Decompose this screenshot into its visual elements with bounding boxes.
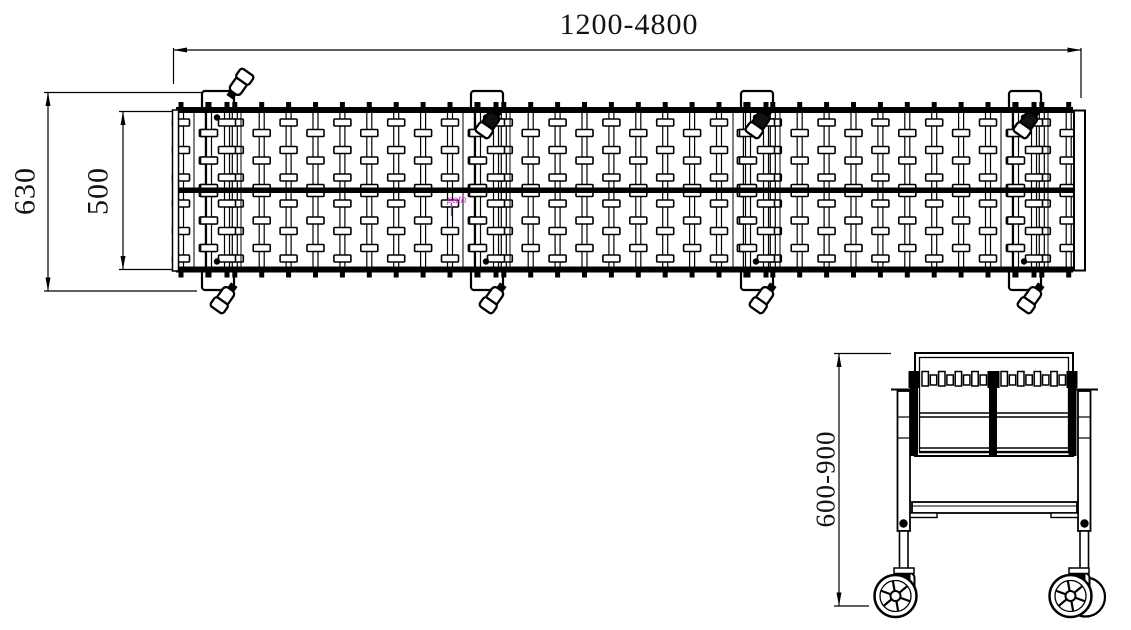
skate-wheel [522, 157, 539, 164]
skate-wheel [442, 119, 459, 126]
middle-rail [176, 188, 1073, 194]
dimension-arrow [174, 48, 188, 53]
skate-wheel [872, 119, 889, 126]
skate-wheel [280, 147, 297, 154]
skate-wheel [415, 245, 432, 252]
axle-stud [878, 273, 883, 278]
skate-wheel [522, 245, 539, 252]
leg-inner-tube [900, 531, 909, 569]
skate-wheel [470, 245, 487, 252]
skate-wheel [630, 130, 647, 137]
skate-wheel [872, 174, 889, 181]
caster-plate [894, 568, 914, 574]
shelf-panel [912, 502, 1077, 513]
skate-wheel [926, 174, 943, 181]
skate-wheel [576, 130, 593, 137]
skate-wheel [549, 119, 566, 126]
axle-stud [746, 102, 751, 107]
axle-stud [528, 273, 533, 278]
skate-wheel [470, 157, 487, 164]
axle-stud [663, 273, 668, 278]
axle-stud [501, 102, 506, 107]
skate-wheel [818, 147, 835, 154]
skate-wheel [791, 157, 808, 164]
axle-stud [851, 273, 856, 278]
skate-wheel [415, 130, 432, 137]
axle-stud [582, 102, 587, 107]
skate-wheel [334, 119, 351, 126]
skate-wheel [334, 147, 351, 154]
skate-wheel [711, 200, 728, 207]
skate-wheel [684, 157, 701, 164]
skate-wheel [926, 147, 943, 154]
skate-wheel [711, 255, 728, 262]
skate-wheel [603, 147, 620, 154]
axle-stud [905, 102, 910, 107]
axle-stud [986, 102, 991, 107]
skate-wheel [758, 147, 775, 154]
axle-stud [494, 273, 499, 278]
skate-wheel [603, 119, 620, 126]
skate-wheel [872, 147, 889, 154]
skate-wheel [280, 200, 297, 207]
axle-stud [421, 273, 426, 278]
axle-stud [313, 273, 318, 278]
skate-wheel [1026, 147, 1043, 154]
skate-wheel [899, 130, 916, 137]
skate-wheel-end [972, 372, 978, 387]
skate-wheel [549, 228, 566, 235]
skate-wheel [791, 130, 808, 137]
skate-wheel [576, 245, 593, 252]
skate-wheel [684, 217, 701, 224]
axle-stud [1039, 273, 1044, 278]
axle-stud [986, 273, 991, 278]
axle-stud [476, 273, 481, 278]
axle-stud [717, 102, 722, 107]
skate-wheel [219, 119, 236, 126]
center-post [989, 372, 997, 456]
axle-stud [259, 273, 264, 278]
skate-wheel [953, 217, 970, 224]
skate-wheel-end [980, 375, 986, 385]
axle-stud [824, 273, 829, 278]
axle-stud [932, 102, 937, 107]
dimension-arrow [837, 593, 842, 607]
skate-wheel [522, 130, 539, 137]
skate-wheel [603, 174, 620, 181]
axle-stud [555, 102, 560, 107]
skate-wheel [630, 217, 647, 224]
axle-stud [770, 273, 775, 278]
skate-wheel [388, 228, 405, 235]
skate-wheel [872, 255, 889, 262]
skate-wheel-end [922, 372, 928, 387]
axle-stud [582, 273, 587, 278]
skate-wheel [1008, 157, 1025, 164]
cad-path-artifact-label: path [446, 195, 467, 206]
caster-hub [1066, 591, 1076, 601]
axle-stud [663, 102, 668, 107]
skate-wheel [818, 174, 835, 181]
skate-wheel [219, 255, 236, 262]
height-dimension-label: 600-900 [810, 431, 840, 528]
axle-stud [286, 273, 291, 278]
axle-stud [179, 273, 184, 278]
skate-wheel [219, 147, 236, 154]
axle-stud [232, 102, 237, 107]
skate-wheel [980, 200, 997, 207]
skate-wheel [953, 130, 970, 137]
skate-wheel [980, 147, 997, 154]
dimension-arrow [46, 93, 51, 107]
skate-wheel [1026, 255, 1043, 262]
axle-stud [367, 273, 372, 278]
skate-wheel [307, 217, 324, 224]
skate-wheel [1026, 200, 1043, 207]
skate-wheel [201, 157, 218, 164]
skate-wheel [818, 255, 835, 262]
pivot-bolt [1021, 258, 1027, 264]
technical-drawing-canvas: 1200-4800 630 500 600-900 path [0, 0, 1131, 630]
axle-stud [770, 102, 775, 107]
axle-stud [501, 273, 506, 278]
skate-wheel [442, 174, 459, 181]
shelf [910, 502, 1078, 518]
skate-wheel [630, 157, 647, 164]
pivot-bolt [753, 258, 759, 264]
skate-wheel [758, 200, 775, 207]
skate-wheel [280, 255, 297, 262]
skate-wheel [711, 119, 728, 126]
axle-stud [690, 273, 695, 278]
skate-wheel [388, 147, 405, 154]
skate-wheel [926, 255, 943, 262]
skate-wheel [980, 119, 997, 126]
skate-wheel [219, 228, 236, 235]
skate-wheel [953, 157, 970, 164]
skate-wheel [488, 147, 505, 154]
height-lock-bolt [899, 519, 907, 527]
axle-stud [340, 102, 345, 107]
skate-wheel [415, 217, 432, 224]
skate-wheel [576, 157, 593, 164]
pivot-bolt [214, 114, 220, 120]
shelf-tab [1051, 513, 1078, 518]
skate-wheel-end [955, 372, 961, 387]
axle-stud [905, 273, 910, 278]
axle-stud [394, 273, 399, 278]
skate-wheel [388, 255, 405, 262]
axle-stud [636, 102, 641, 107]
right-end-plate [1074, 111, 1085, 271]
axle-stud [207, 102, 212, 107]
skate-wheel [280, 174, 297, 181]
axle-stud [179, 102, 184, 107]
skate-wheel [361, 157, 378, 164]
skate-wheel [758, 255, 775, 262]
pivot-bolt [483, 258, 489, 264]
skate-wheel [442, 228, 459, 235]
skate-wheel-end [1059, 375, 1065, 385]
axle-stud [528, 102, 533, 107]
leg-outer-tube [898, 391, 911, 531]
skate-wheel [711, 147, 728, 154]
end-view-dimension-lines [834, 354, 891, 607]
skate-wheel [253, 130, 270, 137]
axle-stud [225, 273, 230, 278]
skate-wheel [253, 157, 270, 164]
axle-stud [797, 102, 802, 107]
skate-wheel [219, 200, 236, 207]
axle-stud [476, 102, 481, 107]
skate-wheel [926, 200, 943, 207]
skate-wheel [201, 245, 218, 252]
axle-stud [494, 102, 499, 107]
axle-stud [421, 102, 426, 107]
axle-stud [690, 102, 695, 107]
top-view-drawing [44, 48, 1085, 315]
skate-wheel [980, 228, 997, 235]
skate-wheel [603, 228, 620, 235]
skate-wheel [758, 228, 775, 235]
axle-stud [286, 102, 291, 107]
bed-width-dimension-label: 500 [82, 167, 115, 215]
skate-wheel [334, 200, 351, 207]
axle-block [1067, 371, 1078, 388]
skate-wheel [1026, 228, 1043, 235]
pivot-bolt [214, 258, 220, 264]
skate-wheel [818, 119, 835, 126]
dimension-arrow [121, 112, 126, 126]
skate-wheel [522, 217, 539, 224]
caster-assembly [875, 568, 917, 617]
skate-wheel [872, 228, 889, 235]
axle-stud [959, 273, 964, 278]
skate-wheel-end [1001, 372, 1007, 387]
skate-wheel [899, 157, 916, 164]
skate-wheel [253, 217, 270, 224]
skate-wheel [253, 245, 270, 252]
axle-stud [797, 273, 802, 278]
axle-stud [1014, 102, 1019, 107]
axle-stud [609, 102, 614, 107]
skate-wheel [845, 217, 862, 224]
skate-wheel [684, 130, 701, 137]
skate-wheel [549, 147, 566, 154]
axle-stud [259, 102, 264, 107]
skate-wheel [657, 119, 674, 126]
skate-wheel [488, 228, 505, 235]
skate-wheel [201, 130, 218, 137]
skate-wheel [388, 174, 405, 181]
skate-wheel-end [1009, 375, 1015, 385]
skate-wheel [442, 255, 459, 262]
skate-wheel [361, 217, 378, 224]
skate-wheel-end [1018, 372, 1024, 387]
skate-wheel [201, 217, 218, 224]
skate-wheel [415, 157, 432, 164]
skate-wheel-end [1043, 375, 1049, 385]
skate-wheel [872, 200, 889, 207]
axle-stud [448, 102, 453, 107]
skate-wheel [388, 119, 405, 126]
axle-stud [1066, 102, 1071, 107]
skate-wheel [470, 217, 487, 224]
leg-outer-tube [1078, 391, 1091, 531]
skate-wheel [603, 255, 620, 262]
skate-wheel [1008, 245, 1025, 252]
skate-wheel [740, 245, 757, 252]
skate-wheel [280, 119, 297, 126]
skate-wheel [1026, 174, 1043, 181]
skate-wheel [361, 245, 378, 252]
overall-width-dimension-label: 630 [9, 167, 42, 215]
skate-wheel [818, 228, 835, 235]
skate-wheel-end [1034, 372, 1040, 387]
skate-wheel [845, 245, 862, 252]
height-lock-bolt [1080, 519, 1088, 527]
skate-wheel [657, 147, 674, 154]
caster-assembly [1050, 568, 1106, 617]
axle-stud [1032, 102, 1037, 107]
end-view-drawing [834, 353, 1105, 617]
skate-wheel [711, 228, 728, 235]
skate-wheel [740, 157, 757, 164]
axle-stud [555, 273, 560, 278]
axle-stud [824, 102, 829, 107]
skate-wheel [899, 245, 916, 252]
skate-wheel [307, 245, 324, 252]
dimension-arrow [1068, 48, 1082, 53]
axle-stud [851, 102, 856, 107]
axle-stud [1066, 273, 1071, 278]
axle-stud [764, 102, 769, 107]
axle-stud [367, 102, 372, 107]
skate-wheel [926, 119, 943, 126]
skate-wheel [740, 217, 757, 224]
axle-stud [636, 273, 641, 278]
skate-wheel [953, 245, 970, 252]
skate-wheel [845, 130, 862, 137]
skate-wheel [442, 147, 459, 154]
skate-wheel [899, 217, 916, 224]
leg-inner-tube [1080, 531, 1089, 569]
skate-wheel [549, 174, 566, 181]
skate-wheel [334, 228, 351, 235]
axle-stud [1014, 273, 1019, 278]
skate-wheel [758, 174, 775, 181]
shelf-tab [910, 513, 937, 518]
axle-stud [932, 273, 937, 278]
axle-block [909, 371, 920, 388]
skate-wheel-end [1026, 375, 1032, 385]
dimension-arrow [121, 256, 126, 270]
axle-stud [1039, 102, 1044, 107]
skate-wheel [576, 217, 593, 224]
skate-wheel [926, 228, 943, 235]
skate-wheel [684, 245, 701, 252]
axle-stud [448, 273, 453, 278]
skate-wheel [711, 174, 728, 181]
skate-wheel [334, 255, 351, 262]
skate-wheel [307, 130, 324, 137]
bottom-rail [176, 267, 1073, 273]
skate-wheel [791, 245, 808, 252]
skate-wheel [657, 200, 674, 207]
skate-wheel-end [939, 372, 945, 387]
skate-wheel [1008, 217, 1025, 224]
skate-wheel [280, 228, 297, 235]
axle-stud [313, 102, 318, 107]
flexible-conveyor-drawing: 1200-4800 630 500 600-900 path [0, 0, 1131, 630]
axle-stud [340, 273, 345, 278]
skate-wheel [307, 157, 324, 164]
skate-wheel-end [964, 375, 970, 385]
dimension-arrow [46, 278, 51, 292]
skate-wheel [980, 174, 997, 181]
skate-wheel [657, 255, 674, 262]
skate-wheel [488, 200, 505, 207]
skate-wheel [980, 255, 997, 262]
skate-wheel [334, 174, 351, 181]
skate-wheel [361, 130, 378, 137]
skate-wheel [657, 228, 674, 235]
skate-wheel-end [1051, 372, 1057, 387]
end-frame [909, 353, 1078, 456]
skate-wheel [549, 200, 566, 207]
left-end-plate [173, 110, 179, 271]
skate-wheel-end [947, 375, 953, 385]
axle-stud [1032, 273, 1037, 278]
skate-wheel [488, 174, 505, 181]
axle-stud [207, 273, 212, 278]
skate-wheel [219, 174, 236, 181]
caster-plate [1069, 568, 1089, 574]
skate-wheel-end [930, 375, 936, 385]
skate-wheel [388, 200, 405, 207]
axle-stud [232, 273, 237, 278]
skate-wheel [818, 200, 835, 207]
axle-stud [878, 102, 883, 107]
skate-wheel [791, 217, 808, 224]
top-rail [176, 107, 1073, 113]
skate-wheel [603, 200, 620, 207]
axle-stud [717, 273, 722, 278]
axle-stud [225, 102, 230, 107]
length-dimension-label: 1200-4800 [560, 8, 699, 41]
axle-stud [394, 102, 399, 107]
caster-hub [891, 591, 901, 601]
axle-stud [746, 273, 751, 278]
axle-stud [764, 273, 769, 278]
dimension-arrow [837, 354, 842, 368]
skate-wheel [657, 174, 674, 181]
skate-wheel [630, 245, 647, 252]
axle-stud [959, 102, 964, 107]
skate-wheel [549, 255, 566, 262]
axle-stud [609, 273, 614, 278]
skate-wheel [488, 255, 505, 262]
skate-wheel [845, 157, 862, 164]
